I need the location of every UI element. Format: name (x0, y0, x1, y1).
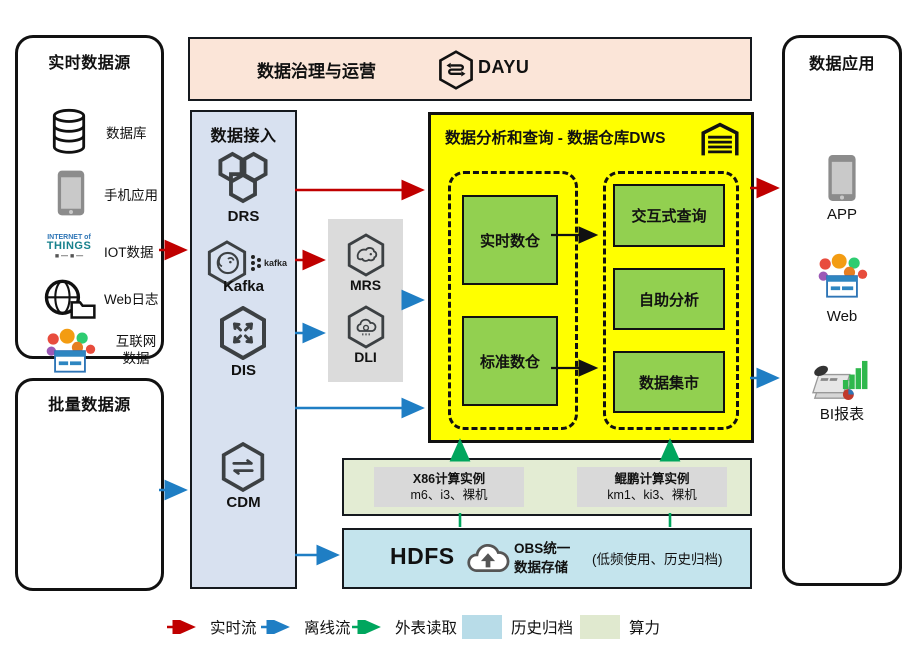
kafka-badge: kafka (250, 254, 287, 272)
warehouse-icon (699, 121, 741, 159)
app-phone-icon (825, 153, 859, 203)
iot-wordcloud-icon: INTERNET of THINGS ■ — ■ — (38, 234, 100, 260)
self-service-analysis-label: 自助分析 (639, 289, 699, 310)
kafka-badge-text: kafka (264, 258, 287, 268)
dli-label: DLI (328, 349, 403, 365)
mobile-phone-icon (54, 169, 88, 217)
self-service-analysis-unit: 自助分析 (613, 268, 725, 330)
dws-box: 数据分析和查询 - 数据仓库DWS 实时数仓 标准数仓 交互式查询 自助分析 数… (428, 112, 754, 443)
dis-label: DIS (192, 362, 295, 379)
legend-compute-label: 算力 (629, 616, 660, 638)
compute-swatch (580, 615, 620, 639)
mrs-label: MRS (328, 277, 403, 293)
internet-collage-icon (42, 328, 98, 378)
legend-archive: 历史归档 (462, 612, 573, 642)
drs-icon (218, 150, 268, 206)
processing-box: MRS DLI (328, 219, 403, 382)
realtime-sources-panel: 实时数据源 数据库 手机应用 INTERNET of THINGS ■ — ■ … (15, 35, 164, 359)
hdfs-label: HDFS (390, 543, 455, 570)
legend-external-label: 外表读取 (395, 616, 457, 638)
governance-product: DAYU (478, 57, 529, 78)
storage-box: HDFS OBS统一 数据存储 (低频使用、历史归档) (342, 528, 752, 589)
data-access-column: 数据接入 DRS kafka Kafka (190, 110, 297, 589)
cdm-label: CDM (192, 494, 295, 511)
web-label: Web (785, 308, 899, 327)
storage-note: (低频使用、历史归档) (592, 548, 723, 568)
cdm-icon (220, 442, 266, 492)
x86-compute-label: X86计算实例 m6、i3、裸机 (374, 467, 524, 507)
web-collage-icon (814, 253, 870, 303)
bi-report-label: BI报表 (785, 406, 899, 425)
dws-title: 数据分析和查询 - 数据仓库DWS (445, 126, 665, 148)
data-apps-panel: 数据应用 APP Web (782, 35, 902, 586)
kunpeng-line1: 鲲鹏计算实例 (614, 471, 689, 487)
kafka-dots-icon (250, 254, 262, 272)
legend-realtime-label: 实时流 (210, 616, 257, 638)
interactive-query-label: 交互式查询 (631, 205, 706, 226)
bi-report-icon (812, 356, 872, 404)
realtime-source-db-label: 数据库 (106, 126, 147, 143)
web-log-icon (42, 278, 98, 320)
app-label: APP (785, 206, 899, 225)
x86-line1: X86计算实例 (413, 471, 485, 487)
governance-banner: 数据治理与运营 DAYU (188, 37, 752, 101)
dis-icon (218, 306, 268, 360)
standard-warehouse-label: 标准数仓 (480, 351, 540, 372)
external-arrow-icon (350, 620, 386, 634)
dayu-icon (437, 49, 475, 91)
realtime-source-internet-label: 互联网 数据 (106, 334, 166, 368)
kafka-label: Kafka (192, 278, 295, 295)
data-access-title: 数据接入 (192, 122, 295, 146)
realtime-warehouse-unit: 实时数仓 (462, 195, 558, 285)
dli-icon (346, 305, 386, 349)
realtime-sources-title: 实时数据源 (18, 49, 161, 73)
compute-instances-box: X86计算实例 m6、i3、裸机 鲲鹏计算实例 km1、ki3、裸机 (342, 458, 752, 516)
data-mart-unit: 数据集市 (613, 351, 725, 413)
kunpeng-compute-label: 鲲鹏计算实例 km1、ki3、裸机 (577, 467, 727, 507)
realtime-arrow-icon (165, 620, 201, 634)
drs-label: DRS (192, 208, 295, 225)
x86-line2: m6、i3、裸机 (410, 487, 487, 503)
realtime-source-app-label: 手机应用 (104, 188, 158, 205)
kunpeng-line2: km1、ki3、裸机 (607, 487, 697, 503)
database-icon (48, 108, 90, 156)
obs-label: OBS统一 数据存储 (514, 540, 570, 578)
legend-external: 外表读取 (350, 612, 457, 642)
legend-compute: 算力 (580, 612, 660, 642)
interactive-query-unit: 交互式查询 (613, 184, 725, 247)
offline-arrow-icon (259, 620, 295, 634)
cloud-upload-icon (466, 540, 510, 576)
data-mart-label: 数据集市 (639, 372, 699, 393)
governance-title: 数据治理与运营 (257, 57, 376, 82)
realtime-source-weblog-label: Web日志 (104, 292, 159, 309)
mrs-icon (346, 233, 386, 277)
realtime-source-iot-label: IOT数据 (104, 245, 154, 262)
legend-offline-label: 离线流 (304, 616, 351, 638)
legend-offline: 离线流 (259, 612, 351, 642)
archive-swatch (462, 615, 502, 639)
legend-archive-label: 历史归档 (511, 616, 573, 638)
standard-warehouse-unit: 标准数仓 (462, 316, 558, 406)
batch-sources-panel: 批量数据源 数据库 (15, 378, 164, 591)
data-apps-title: 数据应用 (785, 50, 899, 74)
realtime-warehouse-label: 实时数仓 (480, 230, 540, 251)
batch-sources-title: 批量数据源 (18, 391, 161, 415)
architecture-diagram: 实时数据源 数据库 手机应用 INTERNET of THINGS ■ — ■ … (0, 0, 914, 651)
legend-realtime: 实时流 (165, 612, 257, 642)
